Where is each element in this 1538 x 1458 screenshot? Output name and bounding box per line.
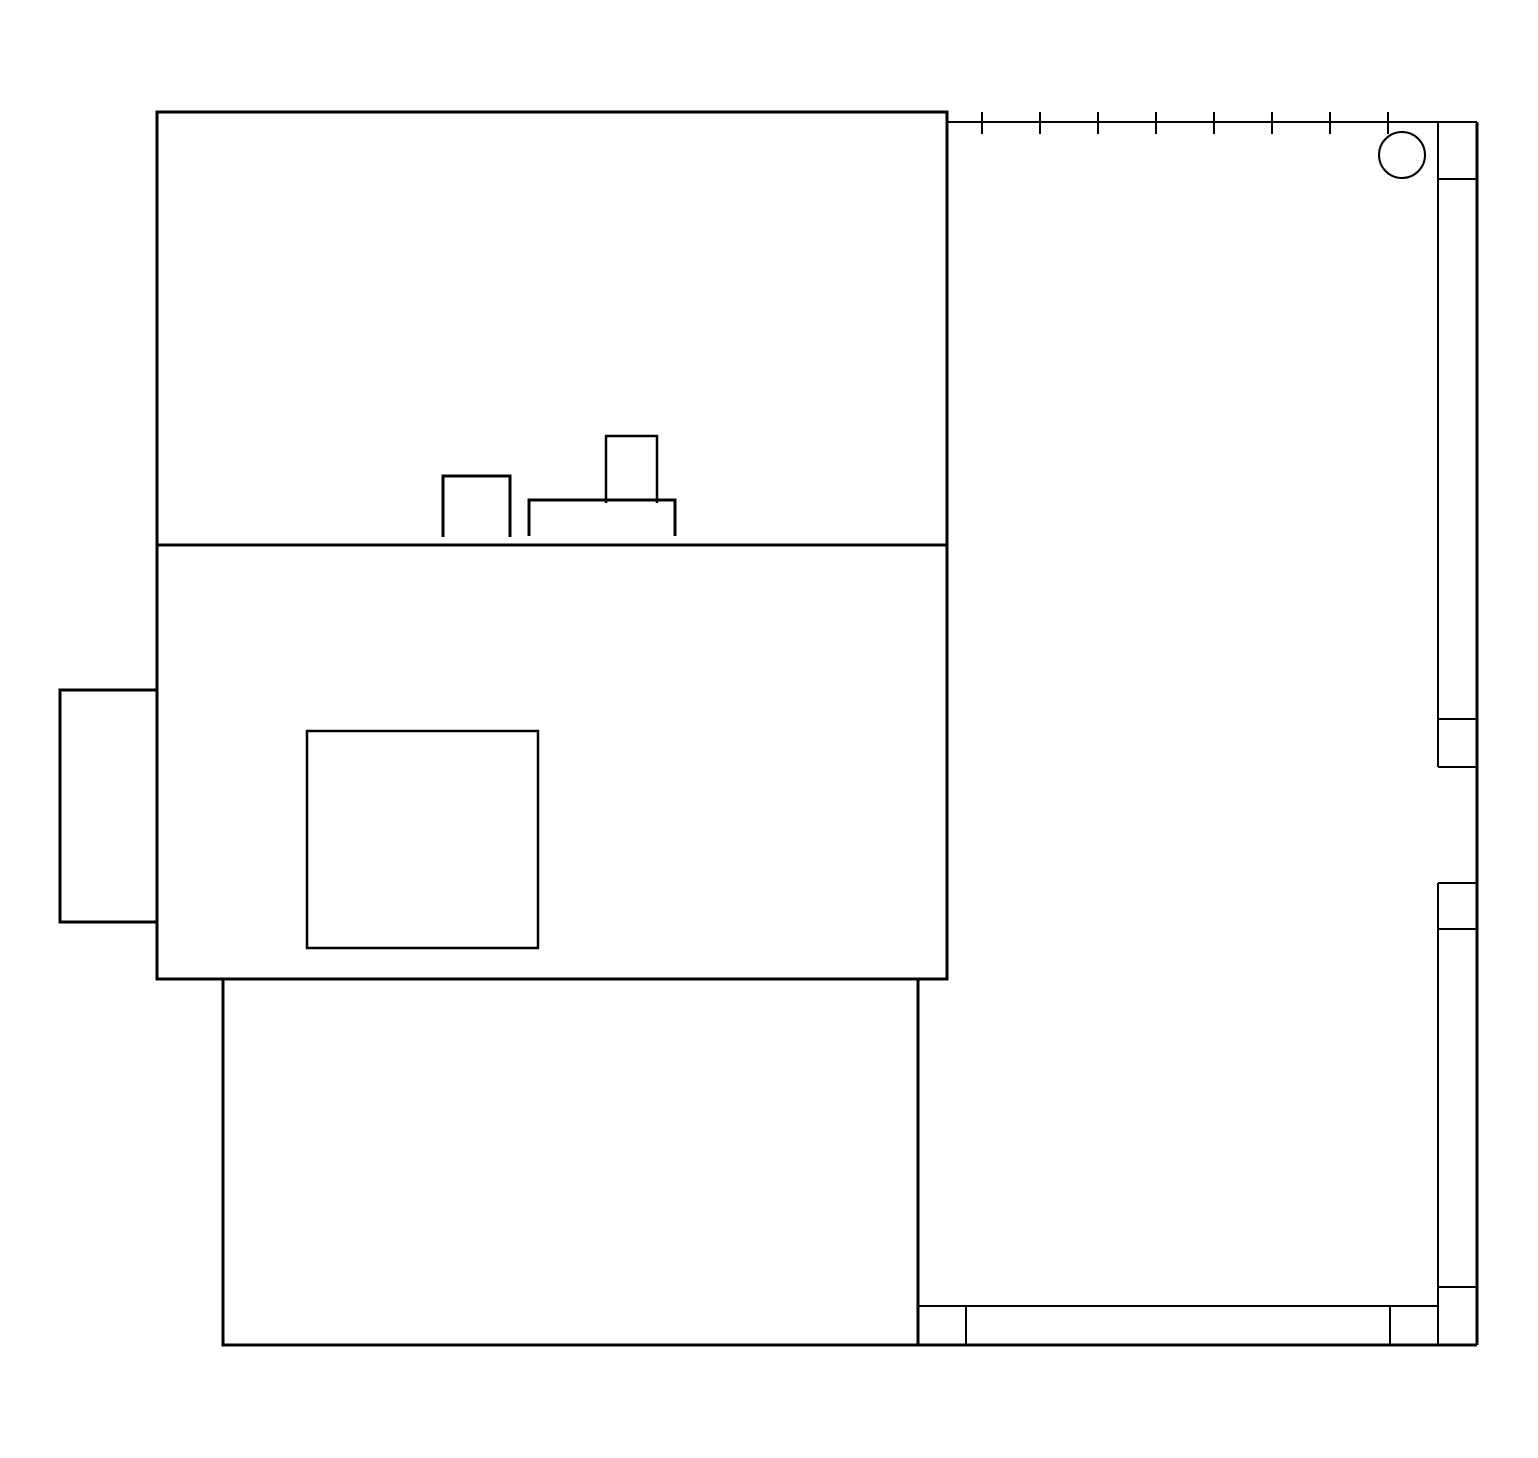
- middle-room-outline: [157, 545, 947, 979]
- column-circle: [1379, 132, 1425, 178]
- bump-small-outline: [443, 476, 510, 537]
- inner-square-outline: [307, 731, 538, 948]
- bump-tall-outline: [606, 436, 657, 503]
- floor-plan-canvas: [0, 0, 1538, 1458]
- upper-room-outline: [157, 112, 947, 545]
- lower-room-outline: [223, 979, 918, 1345]
- left-bay-outline: [60, 690, 157, 922]
- bump-wide-outline: [529, 500, 675, 536]
- drawing-page: [0, 0, 1538, 1458]
